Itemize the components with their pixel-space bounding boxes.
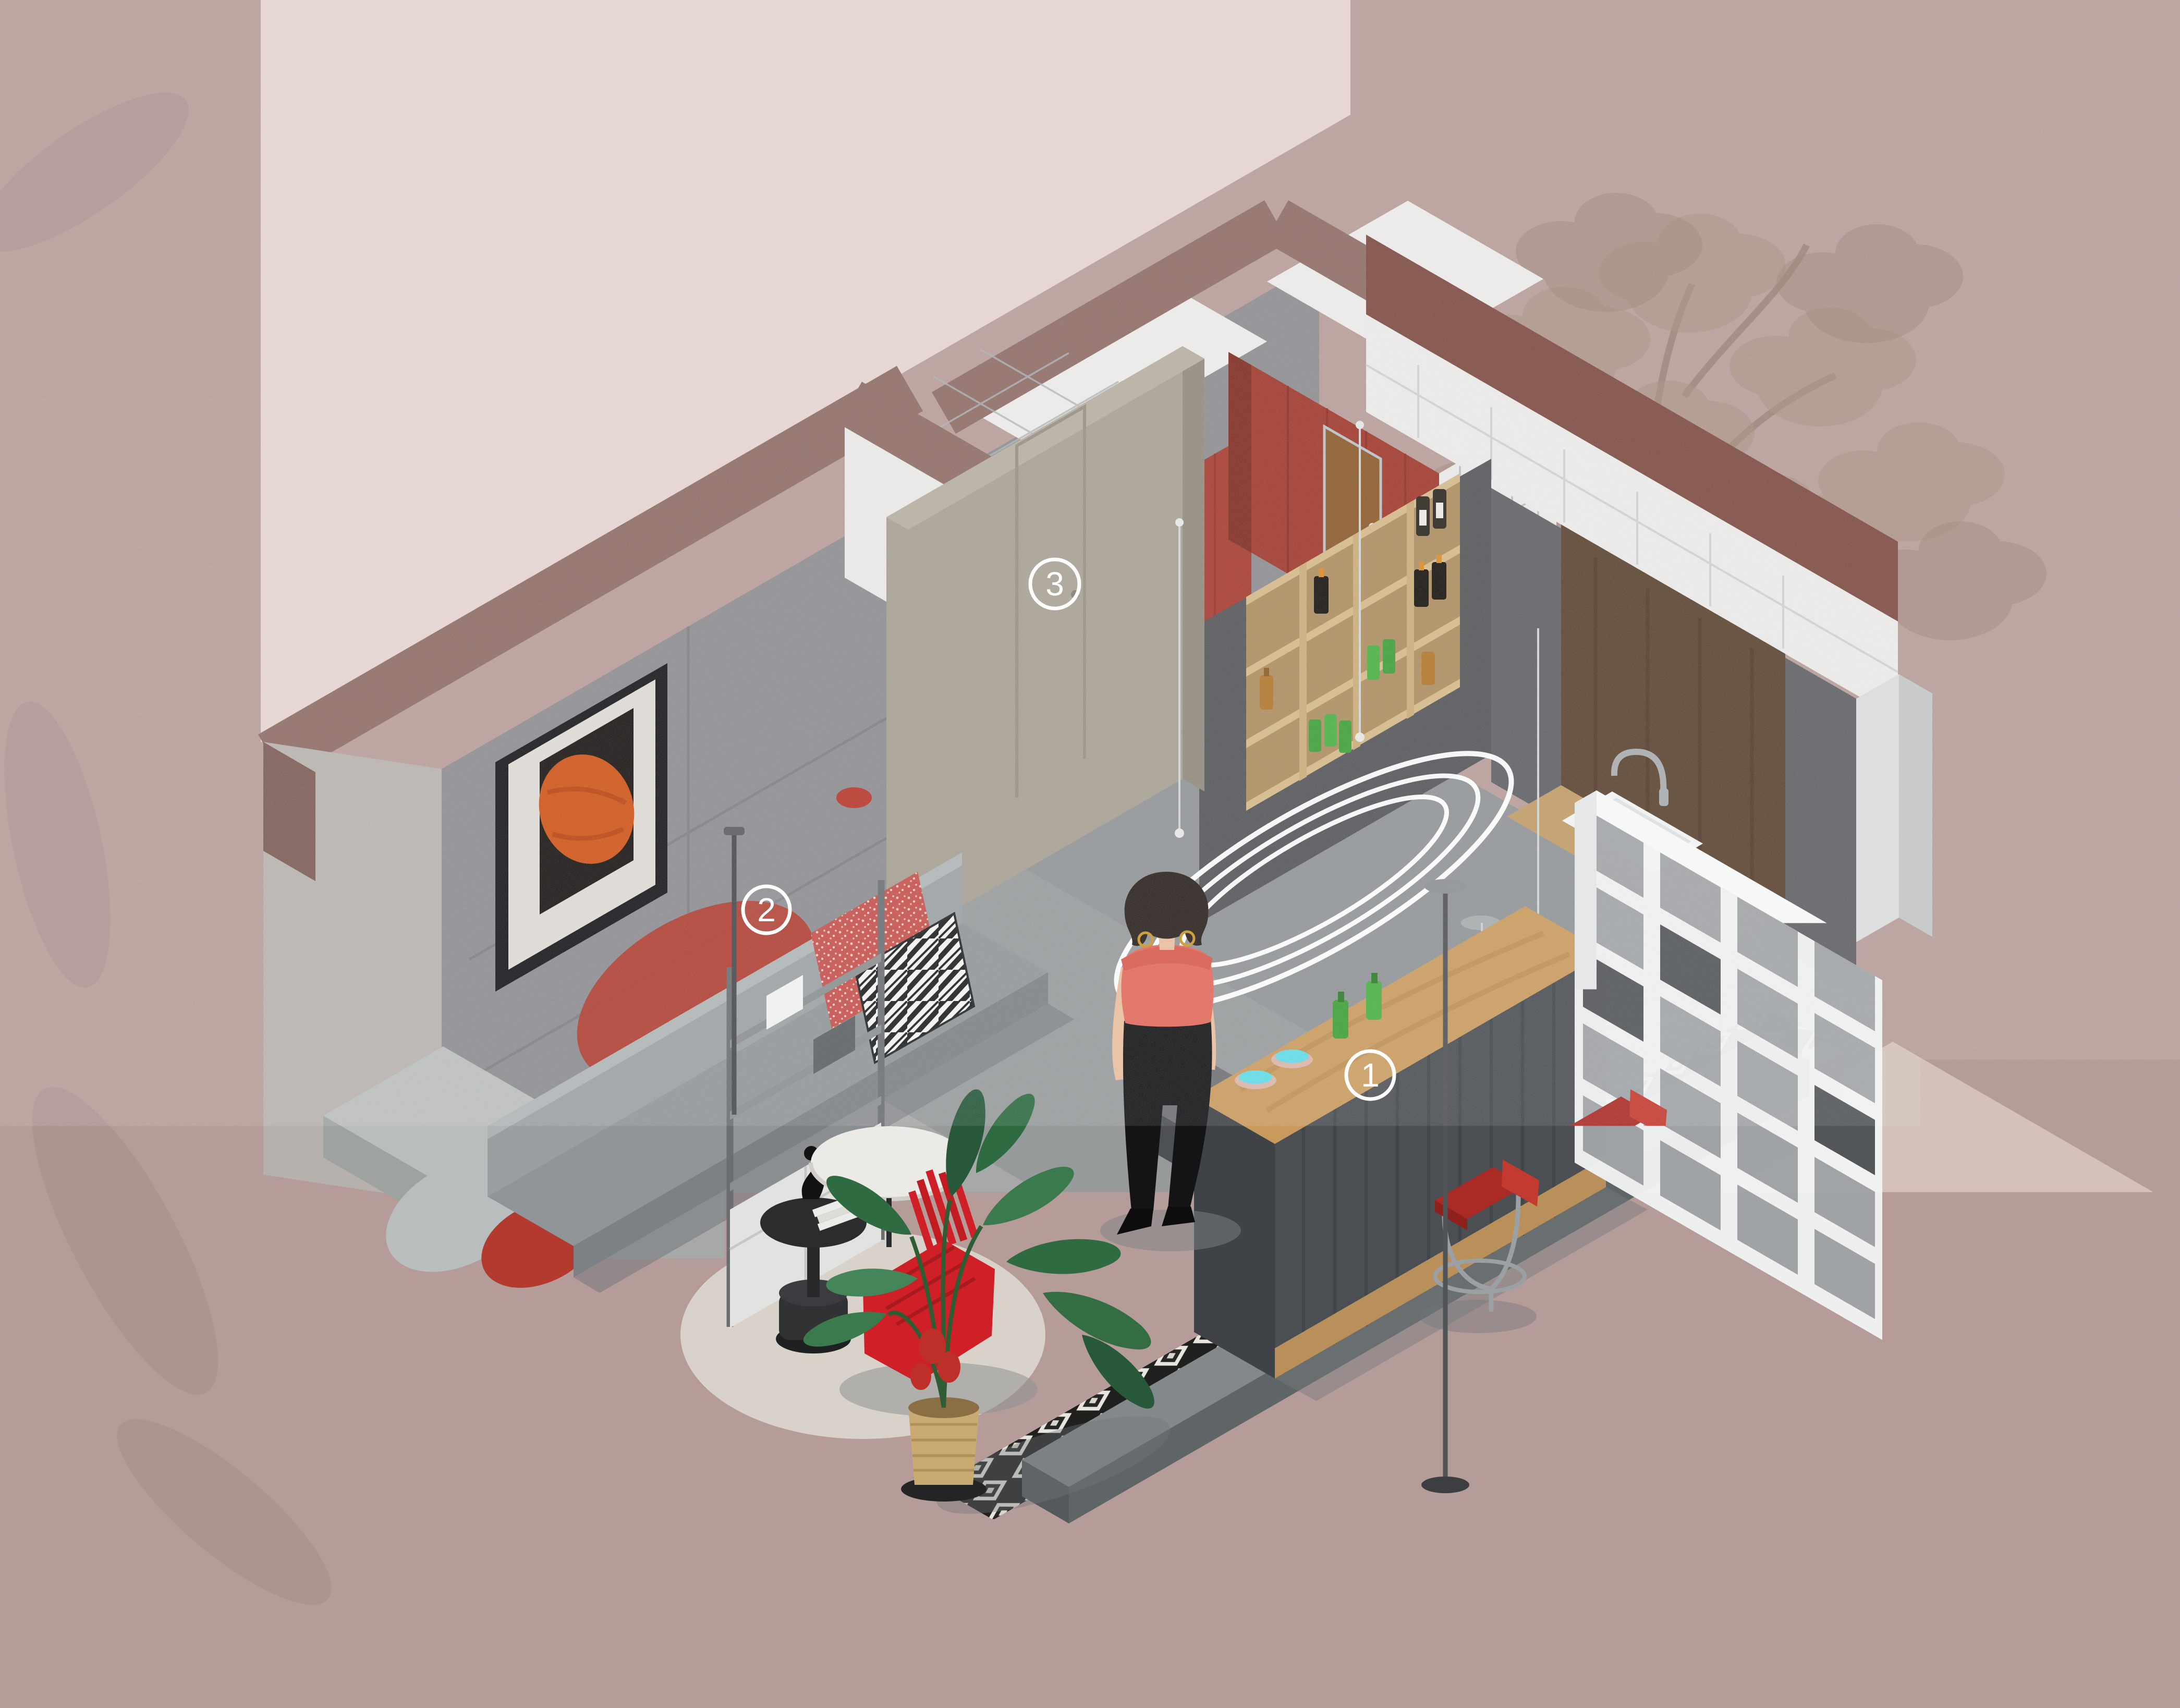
legend-item-2: 2. 观影轰趴区 [1862, 1485, 2064, 1519]
legend-item-3: 3. 卫生间 [1862, 1536, 2000, 1570]
isometric-room-illustration: 1 2 3 聚会乌托邦 Party utopia 1. 氛围水吧区 2. 观影轰… [0, 0, 2180, 1708]
legend-item-1: 1. 氛围水吧区 [1862, 1434, 2064, 1468]
title-zh: 聚会乌托邦 [192, 1452, 421, 1495]
title-en: Party utopia [192, 1521, 389, 1558]
